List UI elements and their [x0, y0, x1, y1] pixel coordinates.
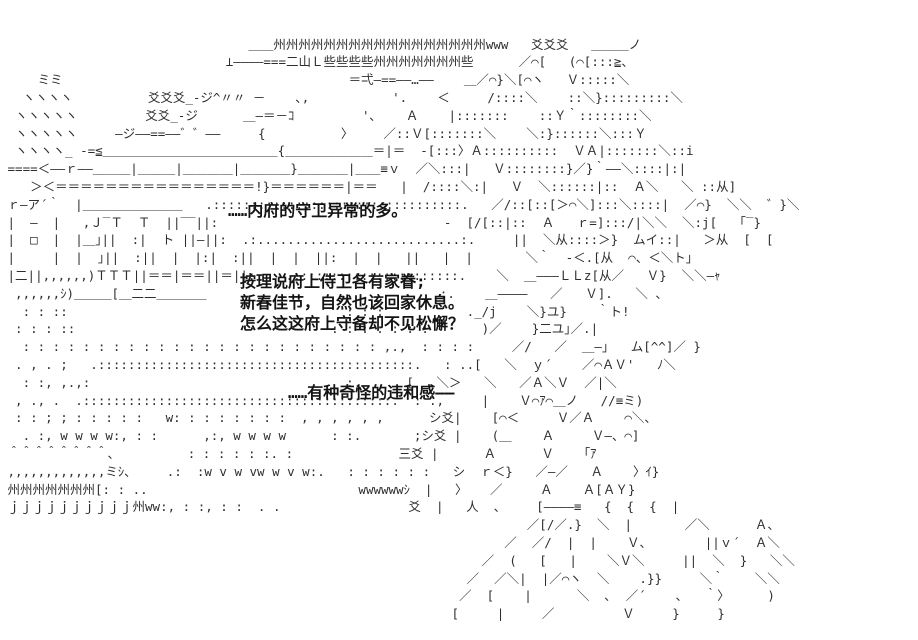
dialogue-line-4: 怎么这这府上守备却不见松懈？ — [240, 310, 464, 334]
dialogue-line-5: ……有种奇怪的违和感—— — [288, 379, 455, 403]
aa-scene: ＿＿州州州州州州州州州州州州州州州州州www 爻爻爻 ＿＿＿ノ ⊥――――===… — [0, 0, 918, 640]
dialogue-line-1: ……内府的守卫异常的多。 — [228, 197, 407, 221]
